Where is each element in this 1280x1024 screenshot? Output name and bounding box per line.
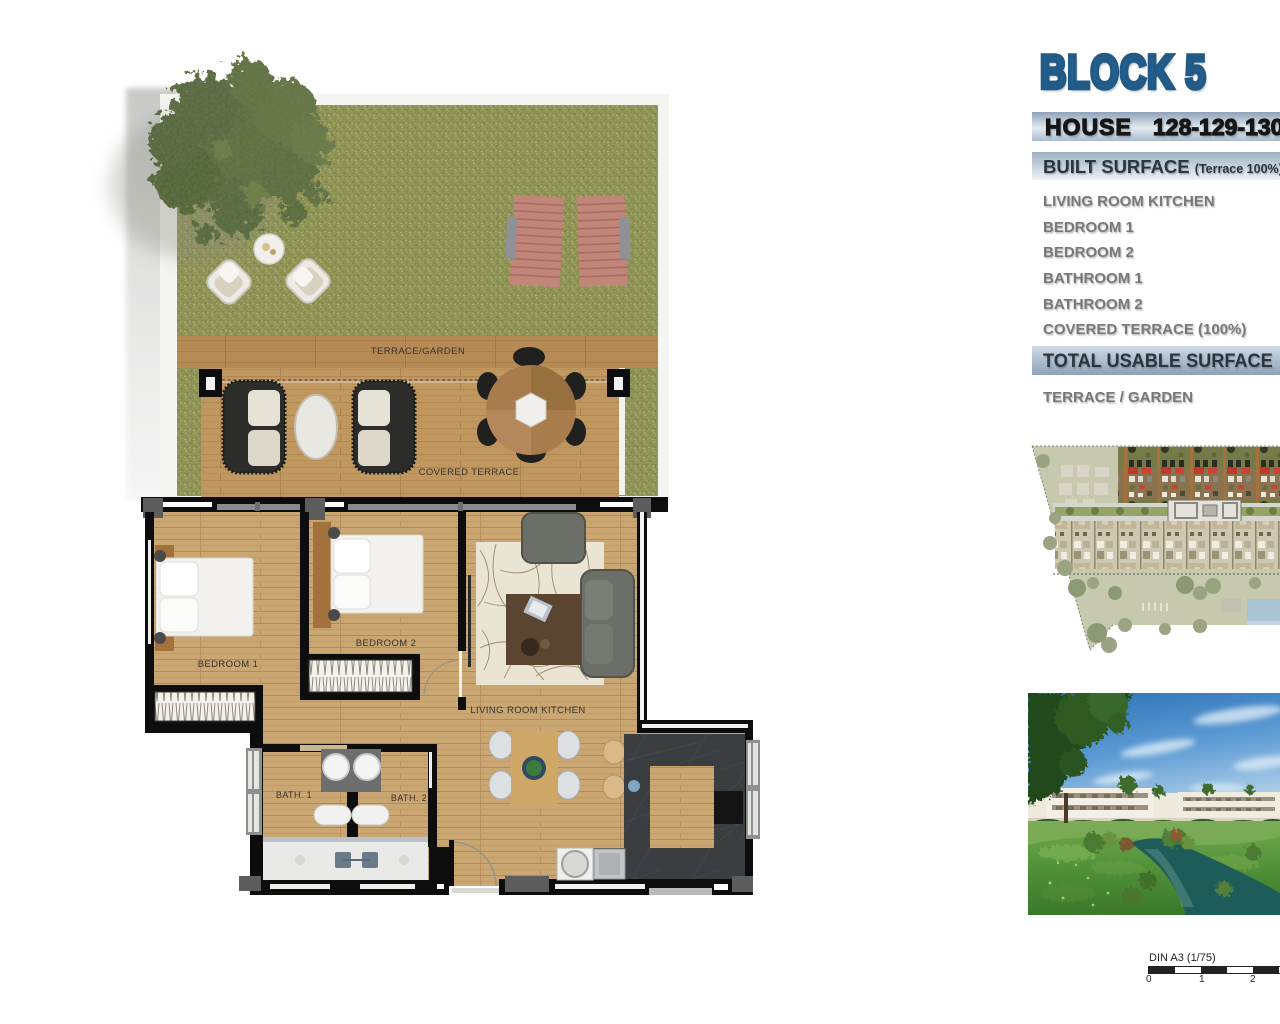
svg-text:BEDROOM 2: BEDROOM 2 — [356, 638, 417, 649]
svg-text:COVERED TERRACE: COVERED TERRACE — [419, 467, 520, 478]
svg-text:BATH. 2: BATH. 2 — [391, 793, 427, 803]
svg-text:BATH. 1: BATH. 1 — [276, 790, 312, 800]
svg-text:LIVING ROOM KITCHEN: LIVING ROOM KITCHEN — [470, 705, 585, 716]
svg-text:BEDROOM 1: BEDROOM 1 — [198, 659, 259, 670]
svg-text:TERRACE/GARDEN: TERRACE/GARDEN — [371, 346, 465, 357]
